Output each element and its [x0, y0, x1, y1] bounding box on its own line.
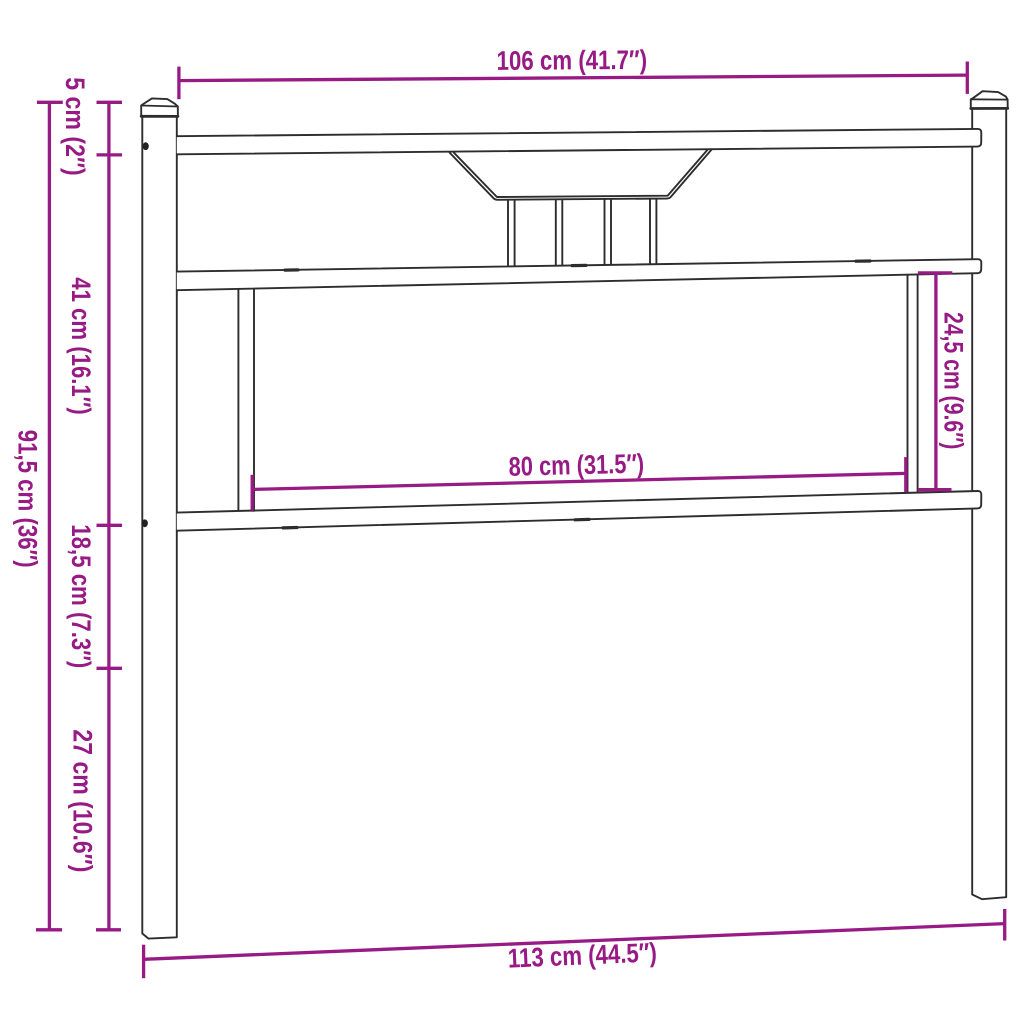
svg-text:18,5 cm (7.3″): 18,5 cm (7.3″)	[66, 524, 96, 668]
svg-text:80 cm (31.5″): 80 cm (31.5″)	[508, 449, 644, 482]
svg-text:27 cm (10.6″): 27 cm (10.6″)	[68, 729, 98, 872]
svg-text:41 cm (16.1″): 41 cm (16.1″)	[66, 277, 96, 415]
svg-text:91,5 cm (36″): 91,5 cm (36″)	[12, 430, 42, 568]
svg-text:113 cm (44.5″): 113 cm (44.5″)	[507, 937, 657, 973]
svg-text:24,5 cm (9.6″): 24,5 cm (9.6″)	[938, 312, 968, 450]
svg-text:5 cm (2″): 5 cm (2″)	[60, 77, 90, 176]
svg-text:106 cm (41.7″): 106 cm (41.7″)	[496, 45, 647, 76]
